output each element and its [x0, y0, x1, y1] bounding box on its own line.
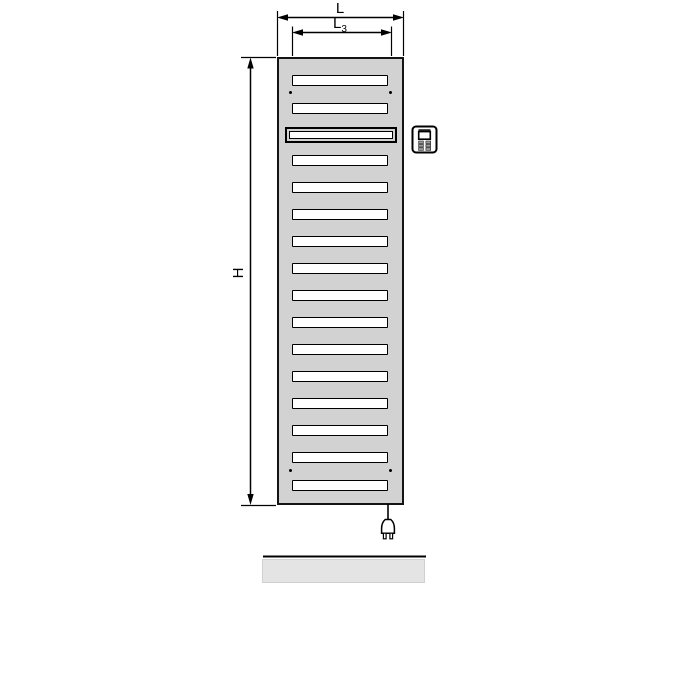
- radiator-slot: [292, 480, 388, 491]
- radiator-slot: [292, 103, 388, 114]
- radiator-panel-slot: [285, 127, 397, 143]
- radiator-slot: [292, 317, 388, 328]
- radiator-slot: [292, 209, 388, 220]
- radiator-slot: [292, 371, 388, 382]
- radiator-panel-inner: [289, 131, 393, 139]
- radiator-slot: [292, 398, 388, 409]
- radiator-slot: [292, 182, 388, 193]
- radiator-slot: [292, 263, 388, 274]
- radiator-slot: [292, 452, 388, 463]
- screw-dot: [289, 91, 292, 94]
- radiator-body: [277, 57, 404, 505]
- radiator-slot: [292, 290, 388, 301]
- dimension-label-inner-width: L3: [328, 16, 352, 35]
- dimension-label-height: H: [231, 262, 249, 284]
- radiator-slot: [292, 75, 388, 86]
- screw-dot: [389, 469, 392, 472]
- control-unit-icon: [413, 127, 437, 153]
- dimension-label-inner-width-sub: 3: [341, 24, 347, 35]
- screw-dot: [389, 91, 392, 94]
- radiator-slot: [292, 425, 388, 436]
- power-plug-icon: [382, 520, 395, 539]
- radiator-slot: [292, 344, 388, 355]
- radiator-slot: [292, 155, 388, 166]
- diagram-canvas: L L3 H: [0, 0, 700, 700]
- radiator-slot: [292, 236, 388, 247]
- screw-dot: [289, 469, 292, 472]
- floor-slab: [262, 559, 425, 583]
